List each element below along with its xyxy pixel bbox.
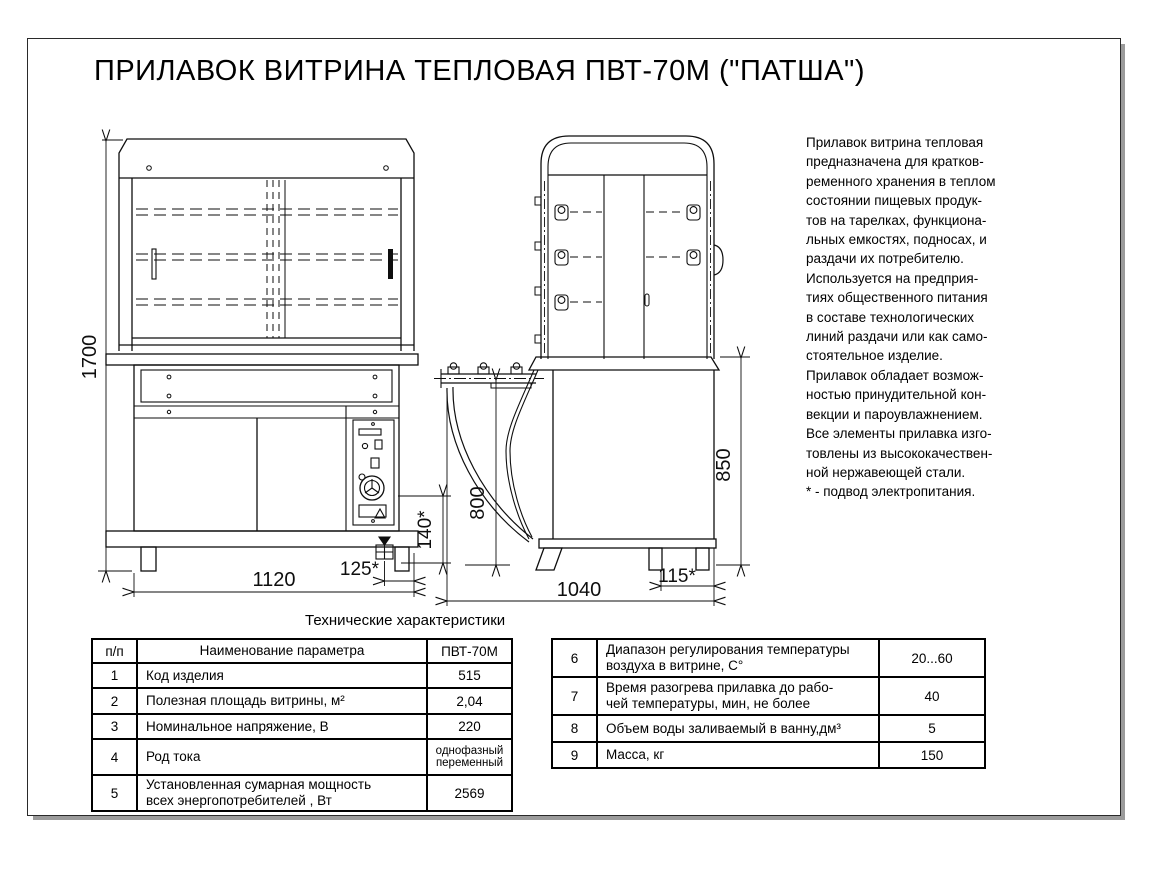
side-base-cabinet (434, 357, 719, 570)
row-num: 4 (92, 739, 137, 775)
dim-label-125: 125* (340, 559, 380, 580)
dim-label-115: 115* (658, 566, 696, 587)
dim-label-1040: 1040 (557, 579, 602, 601)
dim-label-1700: 1700 (79, 335, 101, 380)
table-row: 6 Диапазон регулирования температуры воз… (552, 639, 985, 677)
product-description: Прилавок витрина тепловая предназначена … (806, 133, 1051, 502)
header-name: Наименование параметра (137, 639, 427, 663)
table-row: 9 Масса, кг 150 (552, 742, 985, 768)
row-name: Код изделия (137, 663, 427, 688)
row-value: 2,04 (427, 688, 512, 714)
row-value: 5 (879, 715, 985, 742)
tables-caption: Технические характеристики (305, 612, 505, 629)
dim-label-140: 140* (415, 510, 436, 550)
side-dimensions (447, 357, 750, 606)
header-num: п/п (92, 639, 137, 663)
row-num: 7 (552, 677, 597, 715)
header-value: ПВТ-70М (427, 639, 512, 663)
screenshot-root: { "page": { "title": "ПРИЛАВОК ВИТРИНА Т… (0, 0, 1166, 878)
row-num: 5 (92, 775, 137, 811)
table-row: 3 Номинальное напряжение, В 220 (92, 714, 512, 739)
front-control-panel (353, 420, 394, 525)
row-name: Объем воды заливаемый в ванну,дм³ (597, 715, 879, 742)
row-name: Время разогрева прилавка до рабо- чей те… (597, 677, 879, 715)
row-num: 9 (552, 742, 597, 768)
table-row: 8 Объем воды заливаемый в ванну,дм³ 5 (552, 715, 985, 742)
table-row: 1 Код изделия 515 (92, 663, 512, 688)
table-row: 5 Установленная сумарная мощность всех э… (92, 775, 512, 811)
row-name: Род тока (137, 739, 427, 775)
row-name: Масса, кг (597, 742, 879, 768)
row-value: 220 (427, 714, 512, 739)
table-row: 2 Полезная площадь витрины, м² 2,04 (92, 688, 512, 714)
side-view-drawing: 800 850 115* 1040 (434, 136, 750, 606)
front-electrical-connector-icon (376, 537, 393, 559)
row-value: 2569 (427, 775, 512, 811)
spec-table-left: п/п Наименование параметра ПВТ-70М 1 Код… (91, 638, 513, 812)
spec-table-right: 6 Диапазон регулирования температуры воз… (551, 638, 986, 769)
row-num: 3 (92, 714, 137, 739)
row-name: Диапазон регулирования температуры возду… (597, 639, 879, 677)
row-value: 20...60 (879, 639, 985, 677)
row-name: Полезная площадь витрины, м² (137, 688, 427, 714)
side-display-case (535, 136, 723, 359)
row-name: Номинальное напряжение, В (137, 714, 427, 739)
row-value: 150 (879, 742, 985, 768)
table-row: 7 Время разогрева прилавка до рабо- чей … (552, 677, 985, 715)
row-num: 2 (92, 688, 137, 714)
row-num: 8 (552, 715, 597, 742)
front-dimensions (98, 140, 451, 597)
row-name: Установленная сумарная мощность всех эне… (137, 775, 427, 811)
row-value: 515 (427, 663, 512, 688)
datasheet-page: ПРИЛАВОК ВИТРИНА ТЕПЛОВАЯ ПВТ-70М ("ПАТШ… (27, 38, 1121, 816)
dim-label-850: 850 (713, 448, 735, 481)
front-display-case (119, 139, 414, 351)
table-header-row: п/п Наименование параметра ПВТ-70М (92, 639, 512, 663)
row-value: 40 (879, 677, 985, 715)
row-num: 1 (92, 663, 137, 688)
row-num: 6 (552, 639, 597, 677)
dim-label-800: 800 (467, 486, 489, 519)
row-value: однофазный переменный (427, 739, 512, 775)
dim-label-1120: 1120 (252, 569, 295, 591)
table-row: 4 Род тока однофазный переменный (92, 739, 512, 775)
front-view-drawing: 1700 1120 125* 140* (79, 139, 451, 597)
